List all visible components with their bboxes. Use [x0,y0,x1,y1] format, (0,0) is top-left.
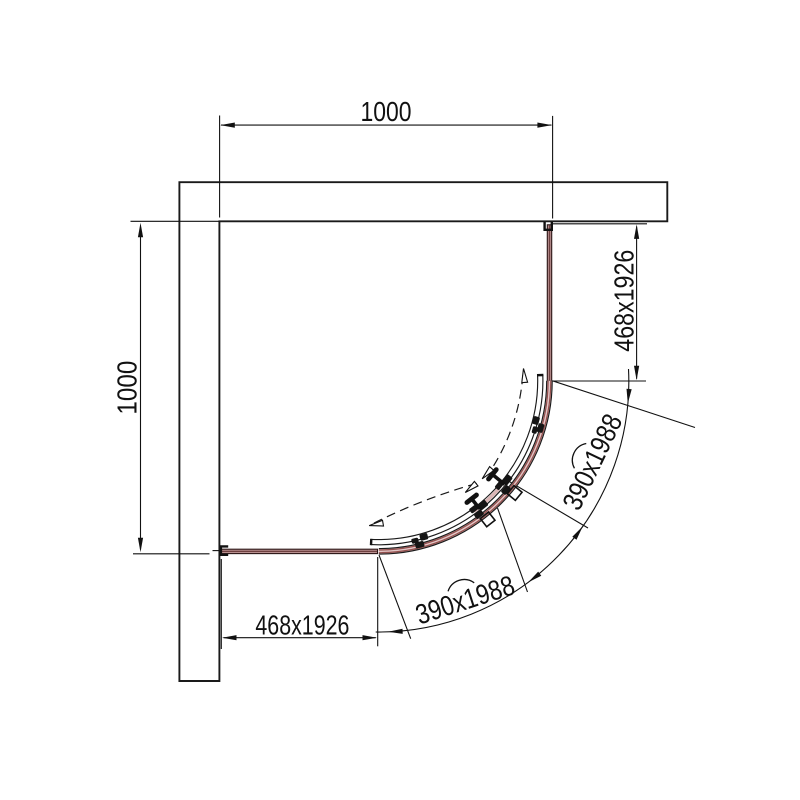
svg-text:1000: 1000 [112,361,143,415]
svg-text:468x1926: 468x1926 [255,610,349,641]
svg-text:1000: 1000 [361,96,412,127]
svg-text:468x1926: 468x1926 [609,250,640,352]
